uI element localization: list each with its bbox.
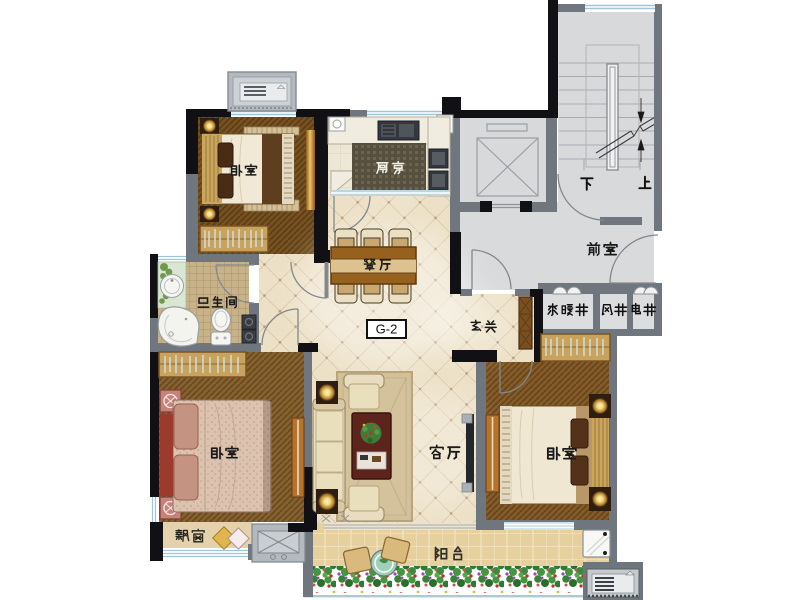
- svg-text:G-2: G-2: [376, 322, 398, 337]
